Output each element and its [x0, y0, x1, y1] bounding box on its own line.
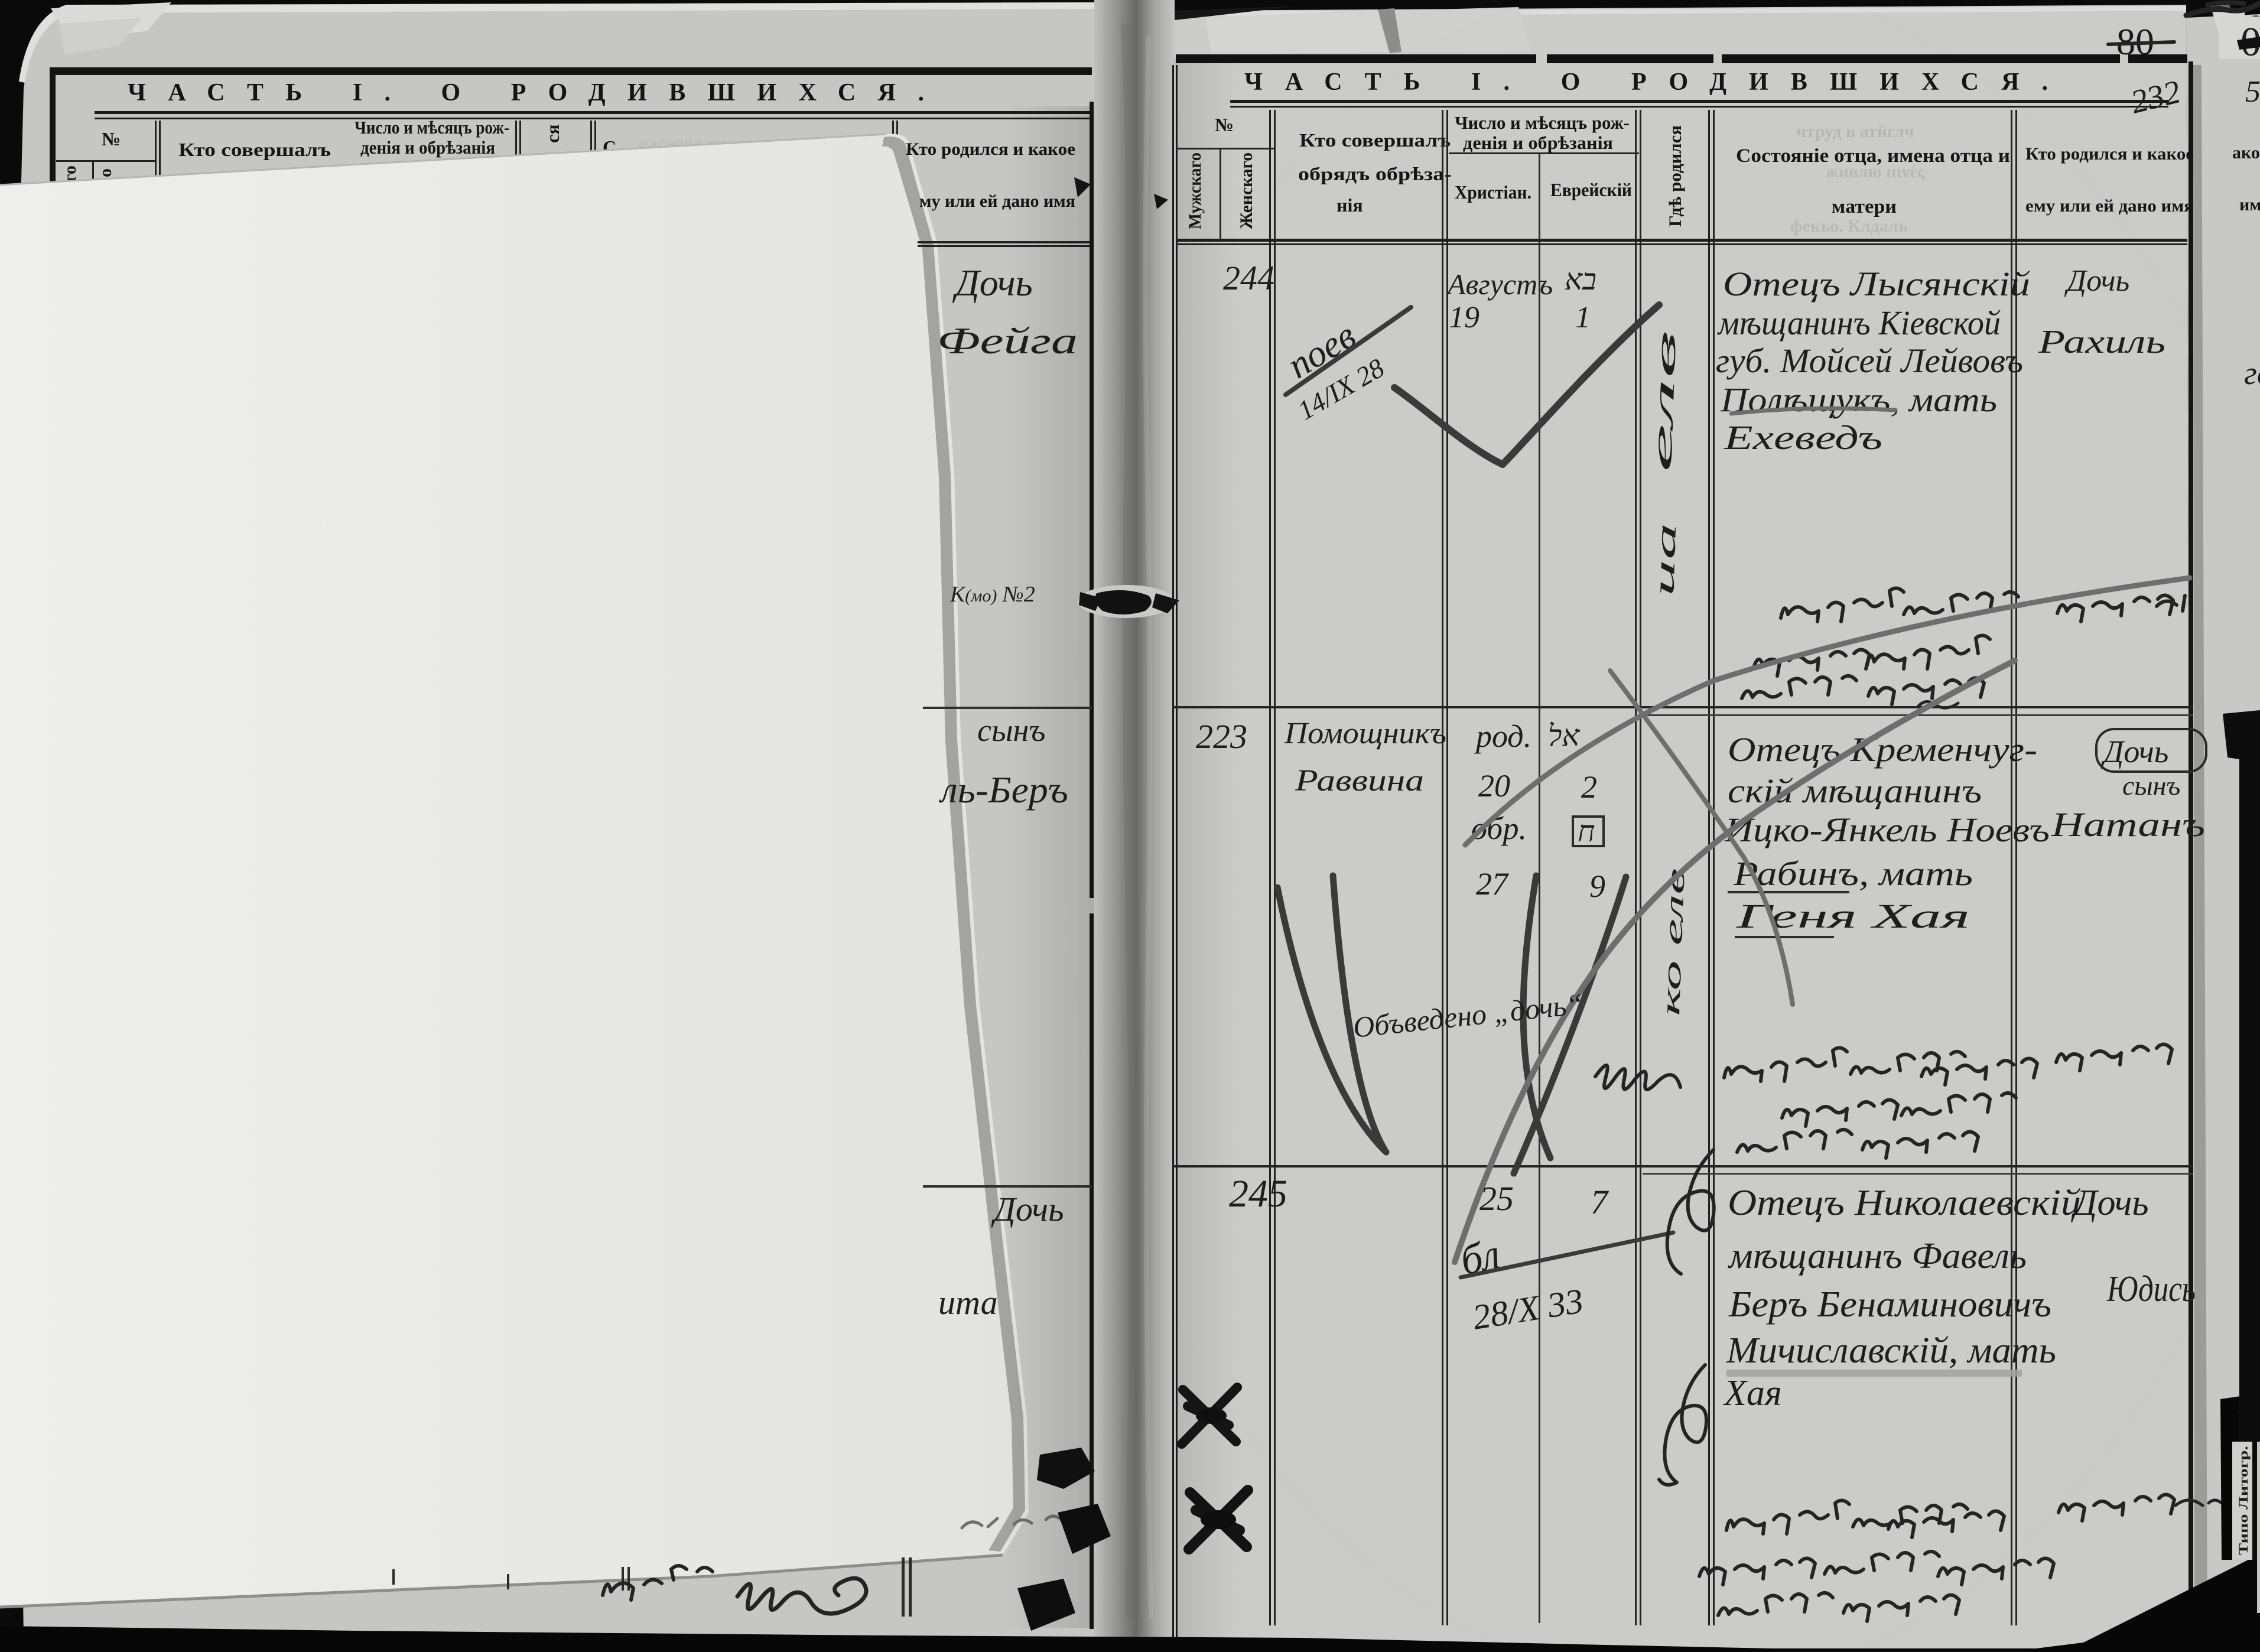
svg-text:ЧАСТЬ І. О РОДИВШИХСЯ.: ЧАСТЬ І. О РОДИВШИХСЯ. — [128, 79, 924, 106]
svg-text:Кто совершалъ: Кто совершалъ — [178, 139, 331, 160]
svg-text:мѣщанинъ Фавель: мѣщанинъ Фавель — [1728, 1236, 2027, 1276]
svg-text:5: 5 — [2245, 75, 2260, 109]
svg-text:Еврейскій: Еврейскій — [1550, 179, 1632, 200]
svg-text:обрядъ обрѣза-: обрядъ обрѣза- — [1298, 163, 1452, 184]
svg-text:ита: ита — [938, 1283, 998, 1322]
svg-text:Юдись: Юдись — [2106, 1269, 2196, 1309]
svg-text:ако: ако — [2232, 143, 2260, 162]
svg-text:25: 25 — [1479, 1179, 1514, 1218]
svg-text:Кто родился и какое: Кто родился и какое — [2025, 144, 2194, 164]
svg-text:ге: ге — [2244, 355, 2260, 392]
svg-text:27: 27 — [1476, 866, 1509, 902]
svg-text:Число и мѣсяцъ рож-: Число и мѣсяцъ рож- — [1455, 112, 1630, 133]
svg-text:Мужскаго: Мужскаго — [1185, 152, 1205, 229]
svg-text:Полѣщукъ, мать: Полѣщукъ, мать — [1720, 381, 1997, 419]
svg-text:елв: елв — [1646, 330, 1682, 473]
svg-text:Беръ Бенаминовичъ: Беръ Бенаминовичъ — [1728, 1284, 2051, 1325]
svg-text:1: 1 — [1575, 301, 1591, 334]
svg-text:сынъ: сынъ — [2122, 770, 2180, 801]
svg-text:род.: род. — [1474, 718, 1531, 754]
svg-text:им: им — [2239, 195, 2260, 214]
svg-text:фекьо. Клдаль: фекьо. Клдаль — [1790, 216, 1908, 236]
svg-text:Ицко-Янкель Ноевъ: Ицко-Янкель Ноевъ — [1724, 811, 2050, 849]
svg-text:чтруд в атйглч: чтруд в атйглч — [1796, 122, 1914, 141]
svg-text:иа: иа — [1648, 522, 1682, 597]
svg-text:денія и обрѣзанія: денія и обрѣзанія — [360, 137, 495, 158]
svg-text:Августъ: Августъ — [1446, 268, 1553, 301]
svg-text:ся: ся — [542, 124, 563, 143]
svg-text:Рахиль: Рахиль — [2038, 324, 2165, 360]
svg-text:ח: ח — [1578, 815, 1595, 848]
svg-text:בא: בא — [1565, 263, 1596, 296]
svg-text:Раввина: Раввина — [1295, 764, 1424, 798]
svg-text:Дочь: Дочь — [2071, 1183, 2149, 1223]
svg-text:нія: нія — [1337, 194, 1363, 216]
svg-text:223: 223 — [1196, 717, 1247, 756]
svg-text:Отецъ Лысянскій: Отецъ Лысянскій — [1723, 265, 2030, 303]
svg-text:Христіан.: Христіан. — [1455, 181, 1531, 203]
svg-text:Дочь: Дочь — [2064, 264, 2129, 298]
svg-text:№: № — [1215, 114, 1234, 135]
svg-text:Число и мѣсяцъ рож-: Число и мѣсяцъ рож- — [355, 117, 509, 138]
svg-text:Дочь: Дочь — [2100, 734, 2168, 769]
svg-text:о: о — [96, 168, 115, 177]
svg-text:Натанъ: Натанъ — [2051, 805, 2205, 844]
svg-text:губ. Мойсей Лейвовъ: губ. Мойсей Лейвовъ — [1716, 342, 2023, 380]
svg-text:№: № — [102, 128, 121, 149]
svg-text:20: 20 — [1478, 768, 1510, 804]
svg-text:Мичиславскій, мать: Мичиславскій, мать — [1726, 1331, 2056, 1371]
svg-text:244: 244 — [1223, 259, 1274, 297]
svg-text:Женскаго: Женскаго — [1237, 152, 1256, 229]
svg-text:Помощникъ: Помощникъ — [1284, 717, 1446, 750]
svg-text:го: го — [60, 165, 80, 182]
svg-text:Типо Литогр.: Типо Литогр. — [2236, 1446, 2251, 1555]
svg-text:Кто совершалъ: Кто совершалъ — [1299, 129, 1451, 151]
svg-text:мѣщанинъ Кіевской: мѣщанинъ Кіевской — [1717, 304, 2001, 342]
svg-text:Хая: Хая — [1722, 1373, 1782, 1413]
svg-text:ЧАСТЬ І. О РОДИВШИХСЯ.: ЧАСТЬ І. О РОДИВШИХСЯ. — [1244, 69, 2048, 96]
svg-text:245: 245 — [1229, 1172, 1287, 1215]
svg-text:ему или ей дано имя: ему или ей дано имя — [2025, 196, 2194, 216]
svg-text:матери: матери — [1832, 196, 1897, 217]
svg-text:19: 19 — [1449, 301, 1479, 334]
svg-text:Рабинъ, мать: Рабинъ, мать — [1733, 854, 1973, 893]
svg-text:денія и обрѣзанія: денія и обрѣзанія — [1463, 132, 1613, 153]
svg-text:Ехеведъ: Ехеведъ — [1724, 418, 1882, 457]
svg-text:9: 9 — [1589, 869, 1605, 904]
svg-text:7: 7 — [1591, 1183, 1609, 1221]
svg-text:живлю пινές: живлю пινές — [1826, 162, 1925, 181]
svg-text:Отецъ Кременчуг-: Отецъ Кременчуг- — [1728, 730, 2037, 769]
svg-text:Отецъ Николаевскій: Отецъ Николаевскій — [1728, 1183, 2081, 1223]
svg-text:2: 2 — [1581, 769, 1597, 805]
svg-text:Гдѣ родился: Гдѣ родился — [1666, 125, 1685, 227]
svg-text:אל: אל — [1548, 719, 1580, 752]
